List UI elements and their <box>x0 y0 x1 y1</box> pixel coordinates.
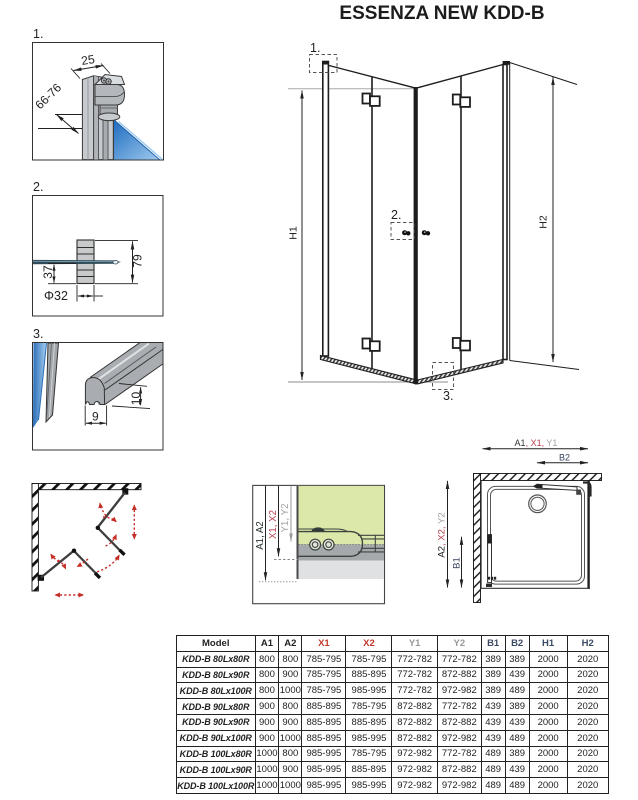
svg-text:9: 9 <box>92 410 99 424</box>
svg-text:3.: 3. <box>443 389 453 403</box>
svg-text:1.: 1. <box>310 41 320 55</box>
svg-text:37: 37 <box>41 265 55 279</box>
svg-text:3.: 3. <box>33 327 43 341</box>
svg-text:X1, X2: X1, X2 <box>268 510 279 539</box>
svg-text:B2: B2 <box>559 452 570 462</box>
svg-text:A2, X2, Y2: A2, X2, Y2 <box>437 512 448 557</box>
svg-text:H1: H1 <box>288 226 300 240</box>
svg-text:B1: B1 <box>452 557 463 569</box>
svg-text:2.: 2. <box>33 180 43 194</box>
svg-text:H2: H2 <box>538 215 550 229</box>
svg-text:1.: 1. <box>33 27 43 41</box>
svg-text:A1, A2: A1, A2 <box>255 521 266 550</box>
svg-text:Y1, Y2: Y1, Y2 <box>280 504 291 533</box>
svg-text:Φ32: Φ32 <box>44 289 68 303</box>
svg-text:25: 25 <box>80 52 96 68</box>
svg-text:2.: 2. <box>391 208 401 222</box>
svg-text:A1, X1, Y1: A1, X1, Y1 <box>515 438 558 448</box>
